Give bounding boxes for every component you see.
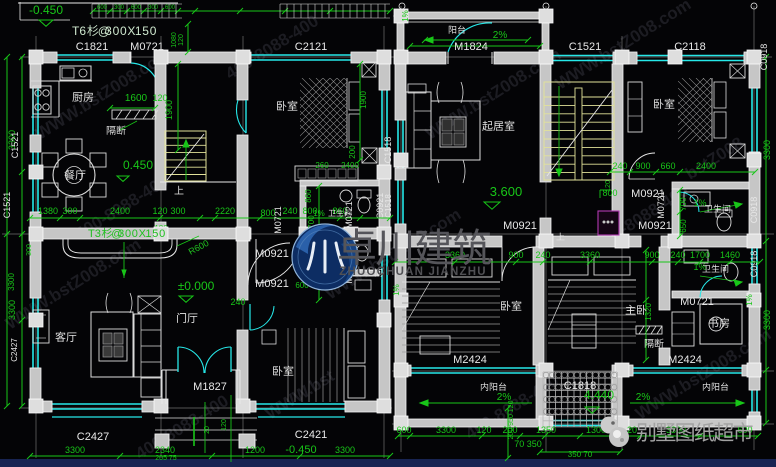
svg-text:660: 660 bbox=[660, 161, 675, 171]
svg-text:1350: 1350 bbox=[536, 425, 556, 435]
svg-text:2400: 2400 bbox=[110, 206, 130, 216]
svg-text:M0921: M0921 bbox=[638, 220, 672, 232]
svg-text:3300: 3300 bbox=[7, 300, 17, 320]
svg-text:700: 700 bbox=[679, 197, 688, 211]
svg-text:1380: 1380 bbox=[38, 206, 58, 216]
svg-text:M1824: M1824 bbox=[454, 41, 488, 53]
svg-text:C2121: C2121 bbox=[295, 41, 327, 53]
svg-text:1080: 1080 bbox=[171, 32, 178, 48]
svg-text:1: 1 bbox=[135, 24, 142, 38]
svg-text:1%: 1% bbox=[693, 198, 706, 208]
svg-text:600: 600 bbox=[97, 5, 108, 11]
svg-text:1200: 1200 bbox=[245, 445, 265, 455]
svg-text:-0.450: -0.450 bbox=[285, 444, 316, 456]
svg-text:5: 5 bbox=[152, 228, 158, 240]
svg-text:3300: 3300 bbox=[65, 445, 85, 455]
svg-text:0: 0 bbox=[132, 228, 138, 240]
svg-text:C1518: C1518 bbox=[383, 137, 393, 164]
svg-text:0: 0 bbox=[125, 228, 131, 240]
svg-text:2%: 2% bbox=[636, 392, 651, 403]
svg-text:M2424: M2424 bbox=[668, 354, 702, 366]
svg-text:200: 200 bbox=[348, 145, 357, 159]
svg-text:1%: 1% bbox=[745, 294, 754, 306]
svg-text:1900: 1900 bbox=[164, 100, 174, 120]
svg-text:C1518: C1518 bbox=[384, 194, 393, 218]
svg-text:ZHUOCHUAN JIANZHU: ZHUOCHUAN JIANZHU bbox=[339, 266, 487, 278]
svg-text:C2421: C2421 bbox=[295, 429, 327, 441]
svg-text:300: 300 bbox=[148, 5, 159, 11]
svg-text:240: 240 bbox=[535, 250, 550, 260]
svg-text:C2427: C2427 bbox=[10, 338, 19, 362]
svg-text:M0921: M0921 bbox=[503, 220, 537, 232]
svg-text:1460: 1460 bbox=[720, 250, 740, 260]
svg-text:3.600: 3.600 bbox=[490, 184, 523, 199]
svg-text:0: 0 bbox=[150, 24, 157, 38]
svg-text:240: 240 bbox=[282, 206, 297, 216]
svg-text:1320: 1320 bbox=[644, 303, 653, 321]
svg-text:1%: 1% bbox=[313, 209, 325, 218]
svg-text:20: 20 bbox=[204, 426, 211, 434]
svg-text:70 350: 70 350 bbox=[514, 439, 542, 449]
svg-text:0: 0 bbox=[159, 228, 165, 240]
svg-text:C1821: C1821 bbox=[76, 41, 108, 53]
svg-text:120: 120 bbox=[476, 425, 491, 435]
svg-text:±0.000: ±0.000 bbox=[178, 279, 215, 293]
svg-text:2%: 2% bbox=[493, 30, 508, 41]
svg-text:6: 6 bbox=[79, 24, 86, 38]
svg-text:1%: 1% bbox=[401, 10, 410, 22]
svg-text:600: 600 bbox=[396, 425, 411, 435]
svg-text:0.450: 0.450 bbox=[123, 158, 153, 172]
svg-text:C1521: C1521 bbox=[569, 41, 601, 53]
svg-text:C1521: C1521 bbox=[10, 132, 20, 159]
svg-text:M0721: M0721 bbox=[656, 191, 666, 219]
svg-text:600: 600 bbox=[131, 5, 142, 11]
svg-text:120: 120 bbox=[221, 419, 228, 431]
svg-text:300: 300 bbox=[62, 206, 77, 216]
svg-text:900: 900 bbox=[508, 250, 523, 260]
svg-text:C1818: C1818 bbox=[564, 380, 596, 392]
svg-text:240: 240 bbox=[230, 297, 245, 307]
svg-text:M0721: M0721 bbox=[680, 296, 714, 308]
svg-text:2400: 2400 bbox=[696, 161, 716, 171]
svg-text:20: 20 bbox=[627, 425, 637, 435]
svg-text:C0918: C0918 bbox=[749, 197, 759, 224]
svg-text:C1521: C1521 bbox=[2, 192, 12, 219]
svg-text:300: 300 bbox=[114, 5, 125, 11]
svg-text:3360: 3360 bbox=[580, 250, 600, 260]
svg-text:3: 3 bbox=[95, 228, 101, 240]
svg-text:120: 120 bbox=[178, 34, 185, 46]
svg-text:900: 900 bbox=[644, 250, 659, 260]
svg-text:3: 3 bbox=[118, 228, 124, 240]
svg-text:M0921: M0921 bbox=[255, 248, 289, 260]
svg-text:3300: 3300 bbox=[7, 273, 16, 291]
svg-text:240: 240 bbox=[612, 161, 627, 171]
svg-text:1: 1 bbox=[145, 228, 151, 240]
svg-text:M2424: M2424 bbox=[453, 354, 487, 366]
svg-text:300: 300 bbox=[170, 206, 185, 216]
svg-text:3300: 3300 bbox=[335, 445, 355, 455]
svg-text:3300: 3300 bbox=[762, 140, 772, 160]
svg-text:2340: 2340 bbox=[155, 445, 175, 455]
svg-text:M1827: M1827 bbox=[193, 381, 227, 393]
svg-text:300: 300 bbox=[26, 244, 33, 256]
svg-text:3: 3 bbox=[105, 24, 112, 38]
svg-text:0: 0 bbox=[113, 24, 120, 38]
svg-text:5: 5 bbox=[142, 24, 149, 38]
svg-text:1700: 1700 bbox=[690, 250, 710, 260]
svg-text:860: 860 bbox=[304, 189, 313, 203]
svg-text:650: 650 bbox=[679, 219, 688, 233]
svg-text:600: 600 bbox=[165, 5, 176, 11]
svg-text:1600: 1600 bbox=[125, 93, 148, 104]
svg-text:350 70: 350 70 bbox=[568, 450, 593, 459]
svg-text:C2427: C2427 bbox=[77, 431, 109, 443]
svg-text:-0.450: -0.450 bbox=[29, 3, 63, 17]
svg-text:M0721: M0721 bbox=[130, 41, 164, 53]
svg-text:M0721: M0721 bbox=[273, 206, 283, 234]
svg-text:M0921: M0921 bbox=[255, 278, 289, 290]
svg-text:1900: 1900 bbox=[359, 91, 368, 109]
svg-text:120: 120 bbox=[605, 180, 612, 192]
svg-text:2220: 2220 bbox=[215, 206, 235, 216]
svg-text:1%: 1% bbox=[693, 262, 706, 272]
svg-text:3300: 3300 bbox=[762, 310, 772, 330]
svg-text:1%: 1% bbox=[392, 284, 401, 296]
svg-text:C0918: C0918 bbox=[759, 44, 769, 71]
svg-text:900: 900 bbox=[635, 161, 650, 171]
svg-text:0: 0 bbox=[120, 24, 127, 38]
svg-text:3300: 3300 bbox=[436, 425, 456, 435]
svg-text:260: 260 bbox=[315, 161, 329, 170]
svg-text:240: 240 bbox=[670, 250, 685, 260]
svg-text:120: 120 bbox=[152, 206, 167, 216]
svg-text:2400: 2400 bbox=[341, 161, 359, 170]
svg-text:C2118: C2118 bbox=[674, 41, 706, 53]
